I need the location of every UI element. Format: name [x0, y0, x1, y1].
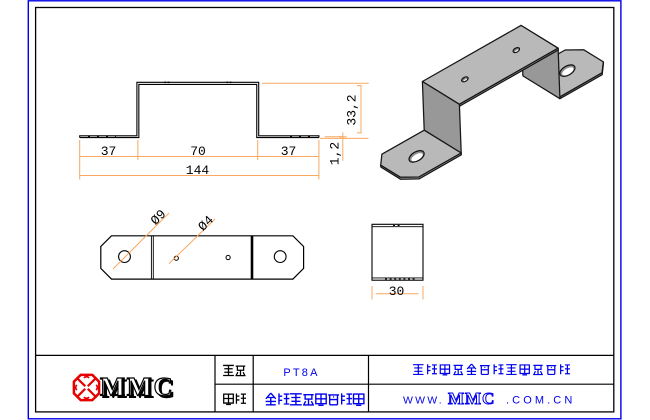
svg-text:PT8A: PT8A [283, 367, 319, 379]
svg-text:.COM.CN: .COM.CN [506, 395, 575, 407]
svg-text:33,2: 33,2 [345, 94, 360, 125]
svg-text:WWW.: WWW. [403, 395, 444, 407]
svg-text:37: 37 [101, 144, 117, 159]
svg-text:1,2: 1,2 [328, 142, 343, 165]
svg-text:MMC: MMC [100, 372, 175, 402]
svg-text:37: 37 [281, 144, 297, 159]
svg-text:30: 30 [389, 284, 405, 299]
svg-text:144: 144 [186, 163, 210, 178]
svg-text:MMC: MMC [448, 389, 495, 408]
svg-text:70: 70 [190, 144, 206, 159]
